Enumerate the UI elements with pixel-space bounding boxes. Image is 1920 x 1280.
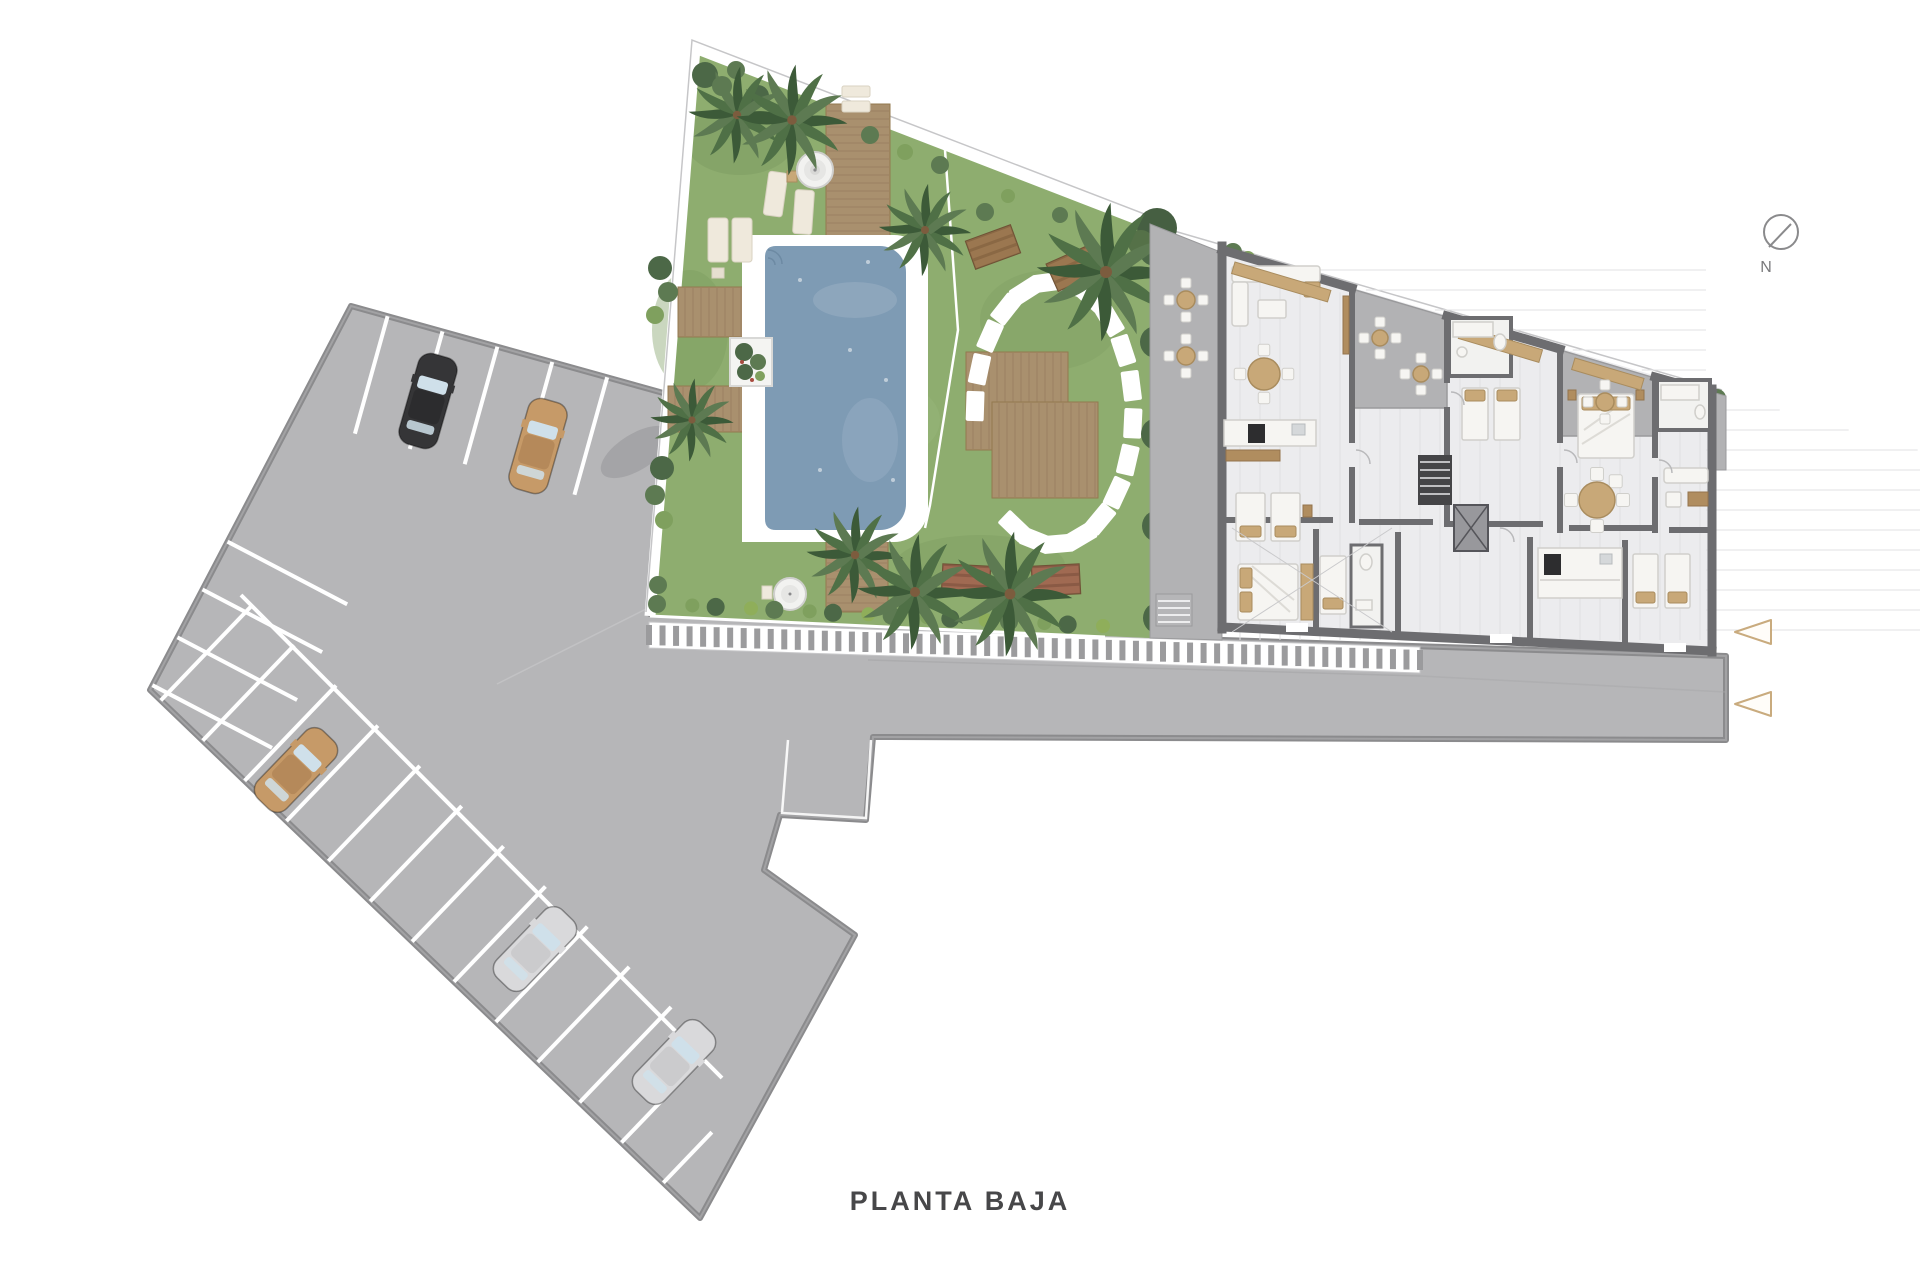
shrub xyxy=(646,306,664,324)
pillow xyxy=(1323,598,1343,609)
site-plan-canvas: N xyxy=(0,0,1920,1280)
stepping-stone xyxy=(1120,370,1142,402)
washbasin xyxy=(1457,347,1467,357)
planter-box xyxy=(730,338,772,386)
stove xyxy=(1544,554,1561,575)
hedge-bush xyxy=(707,598,725,616)
toilet xyxy=(1494,334,1506,350)
entry-arrow-marker xyxy=(1735,620,1771,644)
armchair xyxy=(1666,492,1681,507)
shrub xyxy=(1052,207,1068,223)
shrub xyxy=(650,456,674,480)
sink xyxy=(1292,424,1305,435)
entry-door-gap xyxy=(1286,623,1308,632)
shrub xyxy=(861,126,879,144)
shrub xyxy=(645,485,665,505)
shrub xyxy=(1001,189,1015,203)
nightstand xyxy=(1303,505,1312,517)
unit-terrace xyxy=(1352,289,1447,408)
hedge-bush xyxy=(765,601,783,619)
north-label: N xyxy=(1760,259,1772,276)
wood-deck xyxy=(826,104,890,247)
hedge-bush xyxy=(824,604,842,622)
shrub xyxy=(648,256,672,280)
shrub xyxy=(655,511,673,529)
entry-arrow-marker xyxy=(1735,692,1771,716)
compass-needle xyxy=(1769,224,1791,247)
shrub xyxy=(976,203,994,221)
pillow xyxy=(1240,568,1252,588)
compass-circle xyxy=(1764,215,1798,249)
pillow xyxy=(1465,390,1485,401)
water-highlight xyxy=(842,398,898,482)
washbasin xyxy=(1356,600,1372,610)
pillow xyxy=(1636,592,1655,603)
pillow xyxy=(1240,592,1252,612)
shrub xyxy=(897,144,913,160)
stove xyxy=(1248,424,1265,443)
stepping-stone xyxy=(1123,408,1142,439)
entry-door-gap xyxy=(1490,634,1512,643)
staircase xyxy=(1418,455,1452,505)
pillow xyxy=(1275,526,1296,537)
sink xyxy=(1600,554,1612,564)
side-table xyxy=(1688,492,1708,506)
sofa xyxy=(1664,468,1708,483)
hedge-bush xyxy=(648,595,666,613)
bathtub xyxy=(1453,322,1493,337)
shrub xyxy=(931,156,949,174)
hedge-bush xyxy=(744,601,758,615)
toilet xyxy=(1360,554,1372,570)
entry-door-gap xyxy=(1664,643,1686,652)
kitchen-shelf xyxy=(1226,450,1280,461)
hedge-bush xyxy=(685,598,699,612)
nightstand xyxy=(1568,390,1576,400)
pillow xyxy=(1668,592,1687,603)
nightstand xyxy=(1636,390,1644,400)
hedge-bush xyxy=(803,604,817,618)
elevator xyxy=(1454,505,1488,551)
tv-sideboard xyxy=(1343,296,1349,354)
shrub xyxy=(658,282,678,302)
entry-direction-markers xyxy=(1735,620,1771,716)
shrub xyxy=(649,576,667,594)
water-highlight xyxy=(813,282,897,318)
toilet xyxy=(1695,405,1705,419)
stepping-stone xyxy=(966,391,985,422)
bathtub xyxy=(1661,385,1699,400)
entrance-steps xyxy=(1156,594,1192,626)
building xyxy=(1164,246,1920,698)
coffee-table xyxy=(1258,300,1286,318)
hedge-bush xyxy=(1059,616,1077,634)
sofa xyxy=(1232,282,1248,326)
plan-title: PLANTA BAJA xyxy=(850,1186,1071,1217)
pillow xyxy=(1497,390,1517,401)
swimming-pool xyxy=(742,235,928,542)
bench-seat xyxy=(1301,564,1313,620)
compass: N xyxy=(1760,215,1798,276)
wood-deck xyxy=(992,402,1098,498)
hedge-bush xyxy=(1096,619,1110,633)
floor-plan-page: N PLANTA BAJA xyxy=(0,0,1920,1280)
